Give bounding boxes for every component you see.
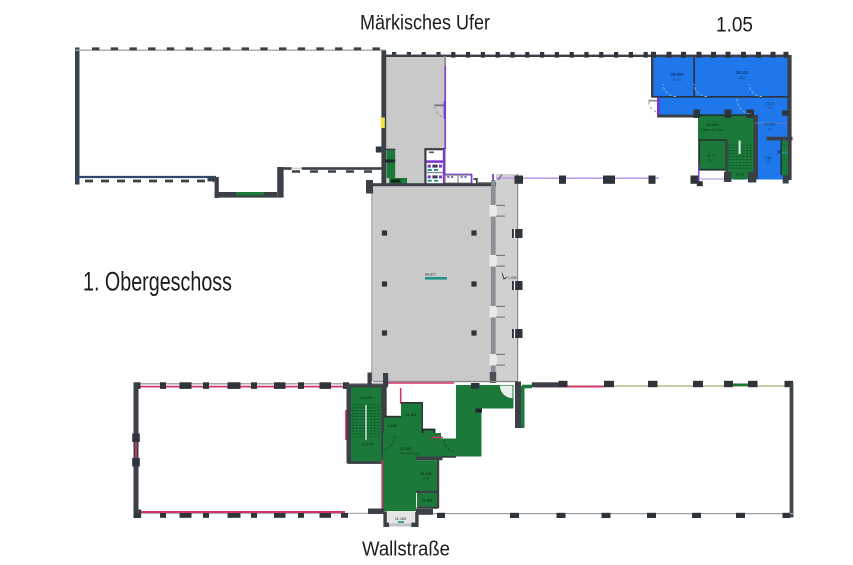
svg-text:28.900: 28.900: [706, 122, 719, 127]
svg-text:10.161: 10.161: [420, 472, 432, 476]
svg-text:Märkisches Ufer: Märkisches Ufer: [360, 11, 490, 35]
svg-text:1.166: 1.166: [388, 424, 397, 428]
svg-text:30.2: 30.2: [739, 76, 746, 80]
svg-text:1. Obergeschoss: 1. Obergeschoss: [83, 267, 232, 297]
svg-text:11.176: 11.176: [361, 442, 374, 447]
svg-text:1.005: 1.005: [508, 276, 517, 280]
svg-text:17.78: 17.78: [735, 173, 743, 177]
svg-text:11.165: 11.165: [406, 413, 417, 417]
svg-text:38.520: 38.520: [736, 70, 749, 75]
svg-text:11.-7: 11.-7: [707, 154, 715, 158]
svg-text:11.170: 11.170: [360, 395, 373, 400]
svg-text:8.2: 8.2: [709, 158, 714, 162]
svg-text:11.162: 11.162: [400, 447, 411, 451]
svg-text:11.168: 11.168: [422, 499, 433, 503]
svg-text:8.1: 8.1: [768, 127, 773, 131]
svg-text:5.6: 5.6: [766, 160, 771, 164]
svg-text:1.05: 1.05: [716, 13, 753, 37]
svg-text:7.3: 7.3: [768, 106, 773, 110]
svg-text:8.92: 8.92: [423, 477, 429, 481]
svg-text:28.909: 28.909: [671, 72, 684, 77]
svg-text:88.871: 88.871: [425, 273, 436, 277]
svg-text:Fläche 22.8 qm: Fläche 22.8 qm: [701, 128, 723, 132]
svg-text:11.163: 11.163: [395, 517, 406, 521]
svg-text:22.71: 22.71: [673, 78, 682, 82]
svg-text:11.11: 11.11: [766, 102, 774, 106]
svg-text:Flur 28.97 qm: Flur 28.97 qm: [400, 452, 419, 456]
svg-text:Wallstraße: Wallstraße: [362, 538, 450, 561]
